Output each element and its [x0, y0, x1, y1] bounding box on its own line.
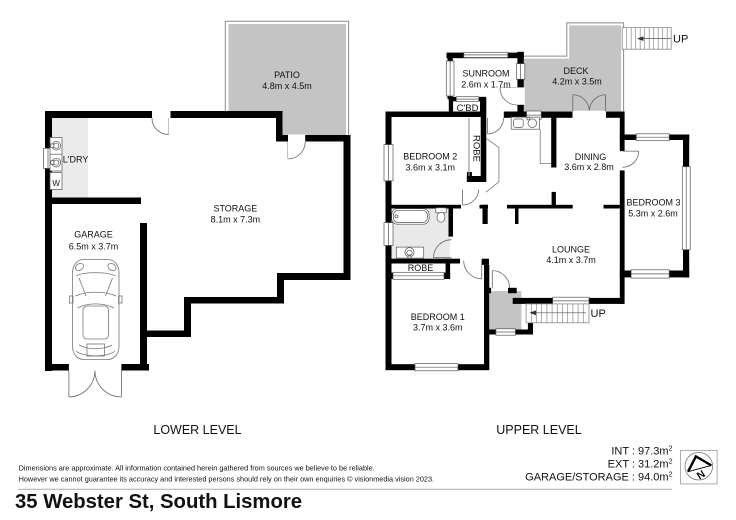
svg-text:W: W	[52, 179, 60, 188]
svg-text:LOWER LEVEL: LOWER LEVEL	[153, 423, 241, 437]
svg-text:GARAGE: GARAGE	[74, 230, 113, 240]
svg-text:C'BD: C'BD	[457, 103, 479, 114]
svg-text:GARAGE/STORAGE : 94.0m2: GARAGE/STORAGE : 94.0m2	[525, 472, 672, 484]
svg-text:5.3m x 2.6m: 5.3m x 2.6m	[628, 209, 678, 219]
svg-text:BEDROOM 1: BEDROOM 1	[411, 312, 465, 322]
svg-text:DINING: DINING	[575, 152, 607, 162]
svg-text:Dimensions are approximate. Al: Dimensions are approximate. All informat…	[19, 463, 375, 472]
svg-text:4.8m x 4.5m: 4.8m x 4.5m	[262, 81, 312, 91]
svg-text:UPPER LEVEL: UPPER LEVEL	[496, 423, 582, 437]
svg-text:LOUNGE: LOUNGE	[552, 245, 590, 255]
svg-text:6.5m x 3.7m: 6.5m x 3.7m	[69, 242, 119, 252]
svg-text:ROBE: ROBE	[408, 263, 434, 273]
svg-text:4.1m x 3.7m: 4.1m x 3.7m	[546, 255, 596, 265]
svg-text:3.6m x 2.8m: 3.6m x 2.8m	[564, 162, 614, 172]
svg-text:L'DRY: L'DRY	[63, 155, 89, 165]
svg-text:INT : 97.3m2: INT : 97.3m2	[611, 446, 672, 458]
svg-text:UP: UP	[591, 308, 606, 320]
svg-text:However we cannot guarantee it: However we cannot guarantee its accuracy…	[19, 475, 434, 484]
svg-text:EXT : 31.2m2: EXT : 31.2m2	[608, 459, 673, 471]
svg-text:BEDROOM 2: BEDROOM 2	[403, 152, 457, 162]
svg-text:STORAGE: STORAGE	[213, 204, 257, 214]
svg-text:ROBE: ROBE	[470, 135, 481, 162]
svg-text:3.7m x 3.6m: 3.7m x 3.6m	[413, 323, 463, 333]
svg-text:8.1m x 7.3m: 8.1m x 7.3m	[211, 215, 261, 225]
svg-text:35 Webster St, South Lismore: 35 Webster St, South Lismore	[15, 491, 302, 513]
svg-text:2.6m x 1.7m: 2.6m x 1.7m	[461, 80, 511, 90]
svg-text:PATIO: PATIO	[274, 70, 300, 80]
svg-text:3.6m x 3.1m: 3.6m x 3.1m	[406, 163, 456, 173]
svg-text:4.2m x 3.5m: 4.2m x 3.5m	[552, 77, 602, 87]
svg-text:BEDROOM 3: BEDROOM 3	[626, 198, 680, 208]
svg-text:SUNROOM: SUNROOM	[463, 69, 510, 79]
svg-text:DECK: DECK	[563, 66, 588, 76]
svg-text:UP: UP	[673, 34, 688, 46]
